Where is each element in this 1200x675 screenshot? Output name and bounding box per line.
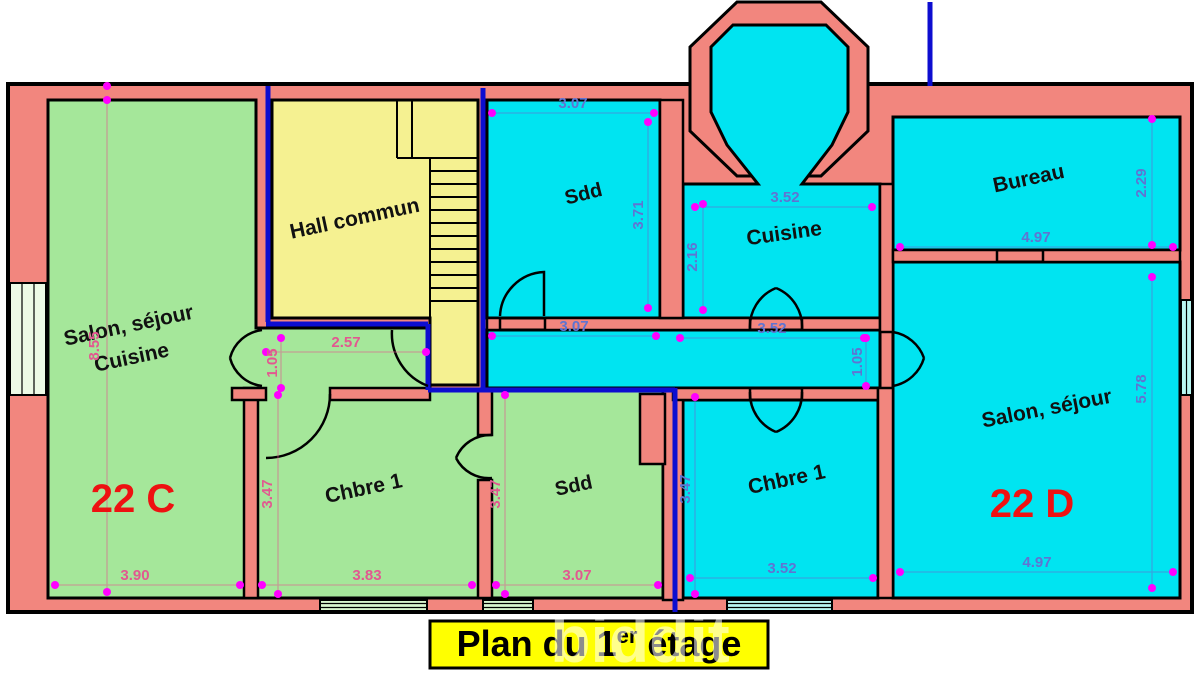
window-bottom-chambre-c: [320, 600, 427, 611]
unit-label-22c: 22 C: [91, 477, 176, 521]
dim-chambre-c-width: 3.83: [352, 567, 381, 584]
duct: [640, 394, 665, 464]
dim-door-d-height: 1.05: [849, 347, 866, 376]
dim-chambre-d-height: 3.47: [677, 474, 694, 503]
dim-corridor-c-width: 2.57: [331, 334, 360, 351]
window-bottom-sdd-c: [483, 600, 533, 611]
dim-cuisine-width: 3.52: [770, 189, 799, 206]
dim-sdd-c-height: 3.47: [487, 479, 504, 508]
dim-corridor-c-height: 1.05: [264, 348, 281, 377]
dim-sdd-d-width-top: 3.07: [558, 95, 587, 112]
dim-bureau-height: 2.29: [1133, 168, 1150, 197]
dim-bureau-width: 4.97: [1021, 229, 1050, 246]
dim-sdd-d-width-bottom: 3.07: [559, 318, 588, 335]
dim-salon-c-height: 8.55: [86, 331, 103, 360]
room-salon-d: [893, 262, 1180, 598]
unit-label-22d: 22 D: [990, 482, 1075, 526]
dim-chambre-c-height: 3.47: [259, 479, 276, 508]
watermark: biddit: [550, 602, 730, 675]
dim-salon-d-width: 4.97: [1022, 554, 1051, 571]
window-left: [10, 283, 46, 395]
dim-sdd-c-width: 3.07: [562, 567, 591, 584]
dim-corridor-d-width: 3.52: [757, 320, 786, 337]
dim-sdd-d-height: 3.71: [630, 200, 647, 229]
dim-chambre-d-width: 3.52: [767, 560, 796, 577]
floor-plan: Salon, séjour Cuisine Hall commun Sdd Cu…: [0, 0, 1200, 675]
dim-salon-c-width: 3.90: [120, 567, 149, 584]
dim-cuisine-height: 2.16: [684, 242, 701, 271]
window-bottom-chambre-d: [727, 600, 832, 611]
dim-salon-d-height: 5.78: [1133, 374, 1150, 403]
